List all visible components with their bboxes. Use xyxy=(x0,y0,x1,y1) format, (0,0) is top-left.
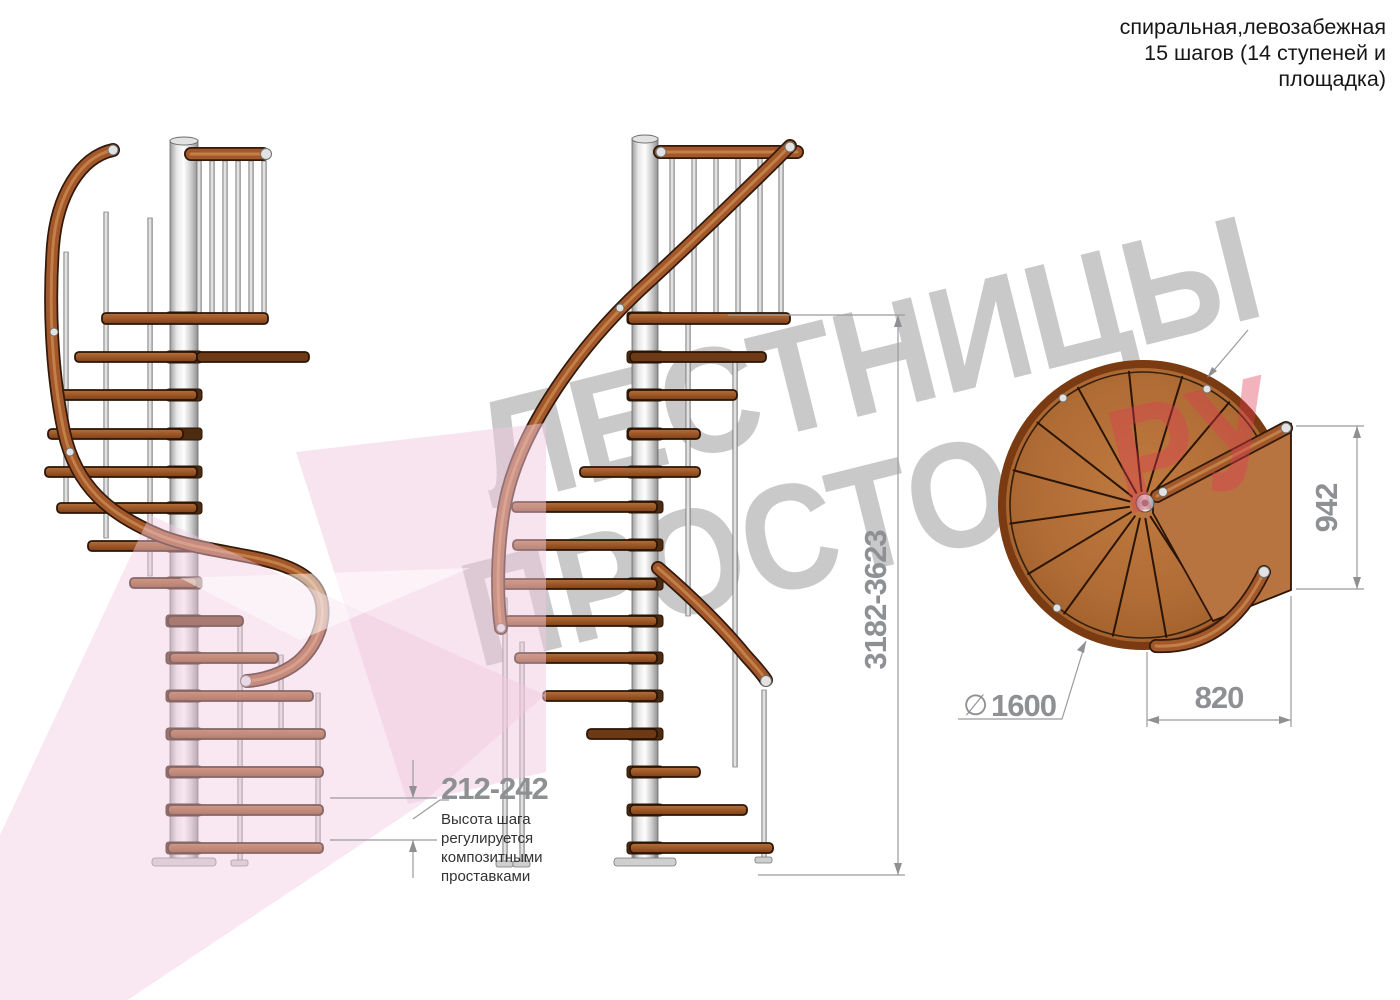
pole-top-cap xyxy=(632,135,658,143)
center-pole xyxy=(632,138,658,860)
step-height-note-line: регулируется xyxy=(441,830,533,847)
pole-base-plate xyxy=(614,858,676,866)
handrail-end-cap xyxy=(1259,567,1270,578)
dim-step-height-label: 212-242 xyxy=(441,771,548,806)
handrail-end-cap xyxy=(656,147,666,157)
step-height-note-line: Высота шага xyxy=(441,811,531,828)
dim-landing-depth: 942 xyxy=(1296,426,1364,589)
dim-diameter-label: 1600 xyxy=(991,688,1056,723)
diameter-symbol: ∅ xyxy=(963,690,988,722)
arrow-down xyxy=(1353,577,1361,589)
title-line: площадка) xyxy=(1278,67,1386,91)
rail-joint xyxy=(66,448,74,456)
handrail-end-cap xyxy=(261,149,272,160)
arrow-leader xyxy=(1077,641,1086,653)
title-line: спиральная,левозабежная xyxy=(1120,15,1386,39)
rim-clip xyxy=(1053,604,1061,612)
arrow-up xyxy=(409,840,417,852)
step-height-note-line: проставками xyxy=(441,868,530,885)
handrail-top-cap xyxy=(108,145,118,155)
step-height-note-line: композитными xyxy=(441,849,543,866)
dim-total-height-label: 3182-3623 xyxy=(858,530,893,670)
rail-joint xyxy=(616,304,624,312)
arrow-left xyxy=(1147,716,1159,724)
rail-joint xyxy=(50,328,58,336)
title-line: 15 шагов (14 ступеней и xyxy=(1144,41,1386,65)
platform-board xyxy=(102,313,268,324)
dim-landing-width-label: 820 xyxy=(1195,680,1244,715)
drawing-canvas: ЛЕСТНИЦЫ ПРОСТО xyxy=(0,0,1400,1000)
arrow-up xyxy=(1353,426,1361,438)
pole-top-cap xyxy=(170,137,198,145)
arrow-right xyxy=(1279,716,1291,724)
staircase-technical-drawing: ЛЕСТНИЦЫ ПРОСТО xyxy=(0,0,1400,1000)
handrail-bottom-cap xyxy=(761,676,772,687)
arrow-down xyxy=(894,863,902,875)
dim-landing-depth-label: 942 xyxy=(1309,484,1344,533)
title-block: спиральная,левозабежная 15 шагов (14 сту… xyxy=(1120,15,1386,91)
rim-clip xyxy=(1059,394,1067,402)
dim-diameter: ∅ 1600 xyxy=(958,641,1086,723)
handrail-top-cap xyxy=(785,142,795,152)
handrail-end-cap xyxy=(1281,423,1291,433)
